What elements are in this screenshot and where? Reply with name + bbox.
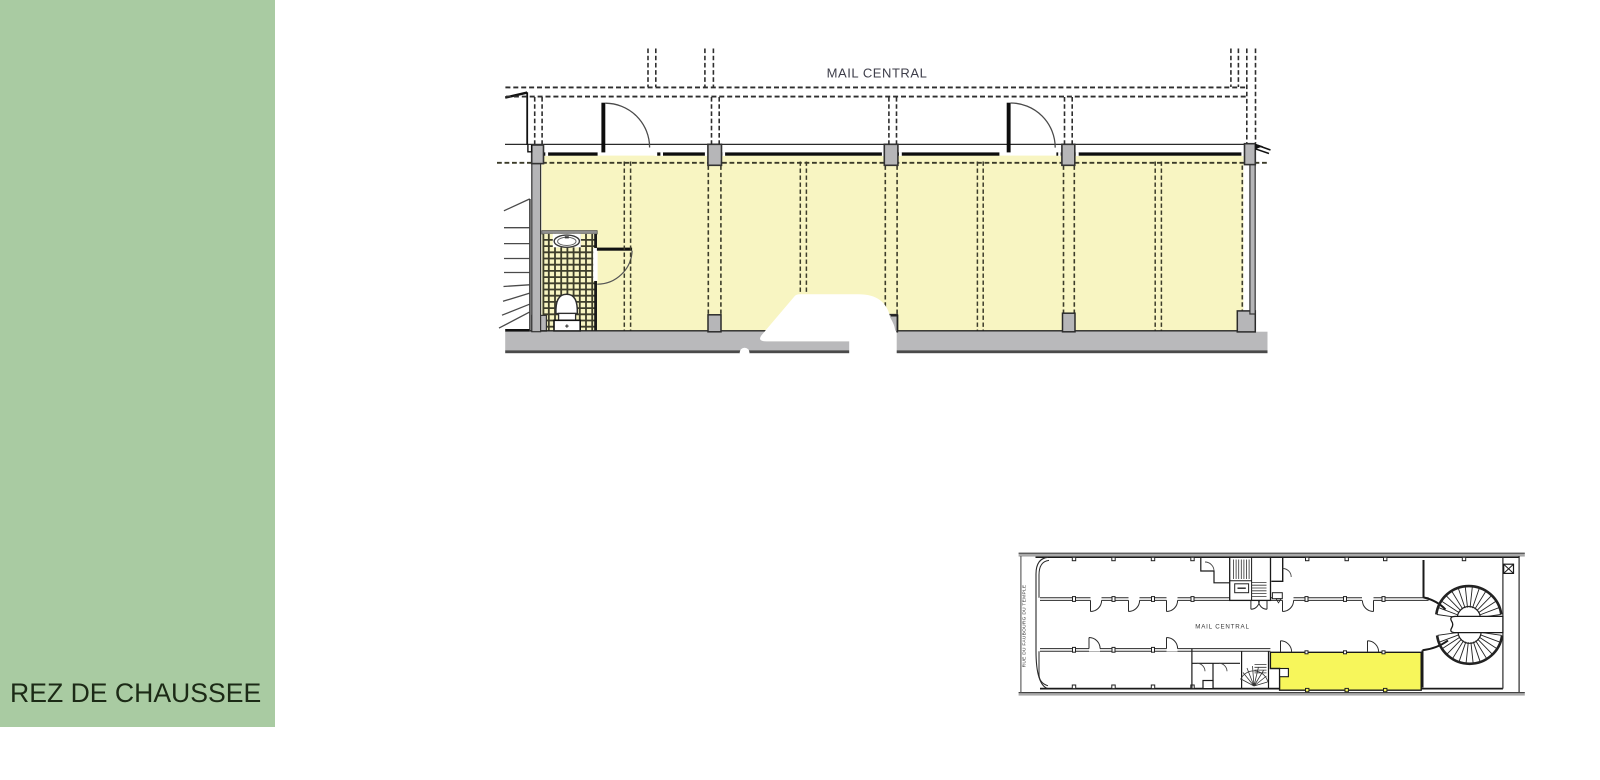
svg-text:MAIL CENTRAL: MAIL CENTRAL [827, 66, 928, 81]
svg-text:MAIL CENTRAL: MAIL CENTRAL [1195, 624, 1249, 631]
svg-text:RUE DU FAUBOURG DU TEMPLE: RUE DU FAUBOURG DU TEMPLE [1022, 585, 1028, 668]
